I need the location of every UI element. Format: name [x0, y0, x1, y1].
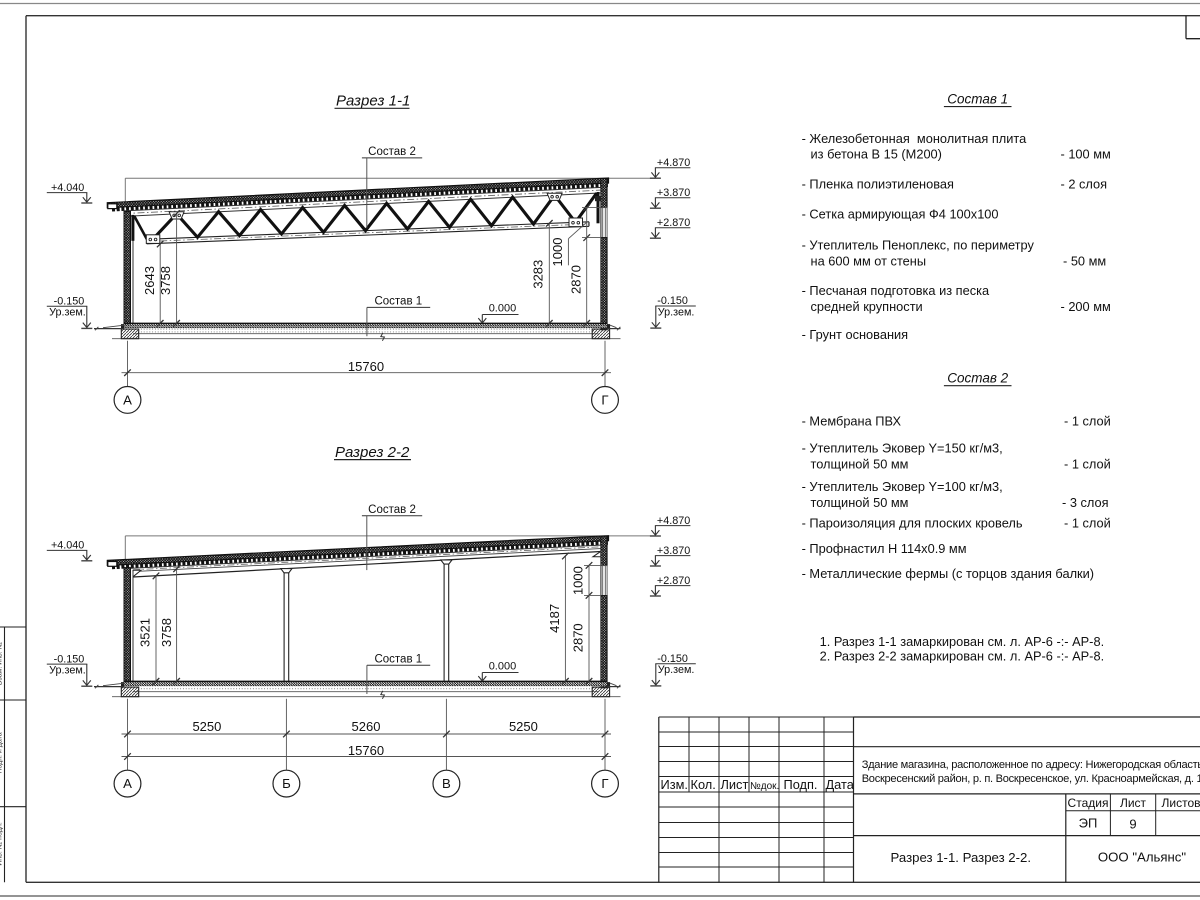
svg-text:+3.870: +3.870: [657, 187, 690, 199]
svg-text:-0.150: -0.150: [657, 653, 688, 665]
svg-text:- 3 слоя: - 3 слоя: [1062, 495, 1109, 510]
svg-text:- Утеплитель Эковер Y=100 кг/м: - Утеплитель Эковер Y=100 кг/м3,: [802, 479, 1003, 494]
svg-text:+4.040: +4.040: [51, 182, 84, 194]
svg-text:Г: Г: [601, 393, 608, 408]
svg-text:- Пароизоляция для плоских кро: - Пароизоляция для плоских кровель: [802, 516, 1023, 531]
svg-text:В: В: [442, 776, 451, 791]
svg-text:1000: 1000: [570, 566, 585, 595]
svg-text:1. Разрез 1-1 замаркирован см.: 1. Разрез 1-1 замаркирован см. л. АР-6 -…: [820, 634, 1105, 649]
svg-text:2. Разрез 2-2 замаркирован см.: 2. Разрез 2-2 замаркирован см. л. АР-6 -…: [820, 649, 1105, 664]
svg-text:-0.150: -0.150: [54, 296, 85, 308]
svg-text:Лист: Лист: [721, 777, 749, 792]
svg-text:15760: 15760: [348, 359, 384, 374]
svg-text:Взам. инв. №: Взам. инв. №: [0, 642, 3, 685]
svg-text:3283: 3283: [531, 260, 546, 289]
svg-text:4187: 4187: [547, 604, 562, 633]
svg-text:Состав 2: Состав 2: [947, 370, 1008, 385]
svg-text:Воскресенский район, р. п. Вос: Воскресенский район, р. п. Воскресенское…: [862, 773, 1200, 785]
svg-text:- 1 слой: - 1 слой: [1064, 516, 1111, 531]
svg-text:на 600 мм от стены: на 600 мм от стены: [811, 253, 927, 268]
svg-text:Ур.зем.: Ур.зем.: [658, 306, 695, 318]
svg-text:2870: 2870: [570, 623, 585, 652]
svg-text:Ур.зем.: Ур.зем.: [49, 665, 86, 677]
svg-text:Состав 1: Состав 1: [947, 91, 1008, 106]
svg-text:Подп.: Подп.: [784, 777, 818, 792]
svg-text:+4.870: +4.870: [657, 515, 690, 527]
svg-text:толщиной 50 мм: толщиной 50 мм: [811, 456, 909, 471]
svg-text:+4.870: +4.870: [657, 157, 690, 169]
svg-text:15760: 15760: [348, 743, 384, 758]
svg-text:Состав 2: Состав 2: [368, 146, 416, 158]
svg-text:- 200 мм: - 200 мм: [1061, 299, 1111, 314]
svg-text:Разрез 1-1: Разрез 1-1: [336, 92, 410, 109]
svg-text:Разрез 1-1. Разрез 2-2.: Разрез 1-1. Разрез 2-2.: [891, 850, 1031, 865]
svg-text:Подп. и дата: Подп. и дата: [0, 732, 3, 773]
svg-text:2870: 2870: [568, 265, 583, 294]
svg-text:+2.870: +2.870: [657, 217, 690, 229]
svg-text:- Мембрана ПВХ: - Мембрана ПВХ: [802, 413, 902, 428]
svg-text:- Железобетонная монолитная п: - Железобетонная монолитная плита: [802, 131, 1028, 146]
svg-text:- Профнастил Н 114х0.9 мм: - Профнастил Н 114х0.9 мм: [802, 541, 967, 556]
svg-text:ЭП: ЭП: [1079, 816, 1098, 831]
svg-text:3758: 3758: [159, 618, 174, 647]
svg-text:- 1 слой: - 1 слой: [1064, 456, 1111, 471]
svg-text:Г: Г: [601, 776, 608, 791]
svg-text:- Сетка армирующая Ф4 100х100: - Сетка армирующая Ф4 100х100: [802, 207, 999, 222]
svg-text:- Пленка полиэтиленовая: - Пленка полиэтиленовая: [802, 176, 954, 191]
svg-text:Листов: Листов: [1162, 796, 1200, 810]
svg-text:0.000: 0.000: [489, 661, 517, 673]
svg-text:Состав 1: Состав 1: [374, 296, 422, 308]
svg-text:-0.150: -0.150: [54, 653, 85, 665]
svg-text:Стадия: Стадия: [1068, 796, 1109, 810]
svg-text:1000: 1000: [550, 238, 565, 267]
svg-text:Здание магазина, расположенное: Здание магазина, расположенное по адресу…: [862, 759, 1200, 771]
svg-text:- Песчаная подготовка из песка: - Песчаная подготовка из песка: [802, 283, 990, 298]
svg-text:+2.870: +2.870: [657, 575, 690, 587]
svg-text:средней крупности: средней крупности: [811, 299, 923, 314]
svg-text:ООО "Альянс": ООО "Альянс": [1098, 850, 1186, 865]
svg-text:№док.: №док.: [750, 781, 779, 792]
svg-text:- 1 слой: - 1 слой: [1064, 413, 1111, 428]
svg-text:- 2 слоя: - 2 слоя: [1061, 176, 1108, 191]
svg-text:из бетона В 15 (М200): из бетона В 15 (М200): [811, 147, 942, 162]
svg-text:-0.150: -0.150: [657, 295, 688, 307]
svg-text:5260: 5260: [352, 719, 381, 734]
svg-text:Ур.зем.: Ур.зем.: [49, 307, 86, 319]
svg-text:- Металлические фермы (с торцо: - Металлические фермы (с торцов здания б…: [802, 566, 1094, 581]
svg-text:Кол.: Кол.: [691, 777, 716, 792]
svg-text:- Утеплитель Пеноплекс, по пер: - Утеплитель Пеноплекс, по периметру: [802, 237, 1035, 252]
svg-text:- Грунт основания: - Грунт основания: [802, 327, 909, 342]
svg-text:3521: 3521: [138, 618, 153, 647]
svg-text:Ур.зем.: Ур.зем.: [658, 664, 695, 676]
svg-text:Разрез 2-2: Разрез 2-2: [335, 444, 410, 461]
svg-text:+3.870: +3.870: [657, 545, 690, 557]
svg-text:Дата: Дата: [826, 777, 855, 792]
svg-text:А: А: [123, 393, 132, 408]
svg-text:3758: 3758: [158, 266, 173, 295]
svg-text:- 50 мм: - 50 мм: [1063, 253, 1106, 268]
svg-text:- 100 мм: - 100 мм: [1061, 147, 1111, 162]
svg-text:Инв. № подл.: Инв. № подл.: [0, 822, 3, 866]
svg-text:9: 9: [1129, 817, 1136, 832]
svg-text:+4.040: +4.040: [51, 540, 84, 552]
svg-text:Состав 2: Состав 2: [368, 504, 416, 516]
svg-text:толщиной 50 мм: толщиной 50 мм: [811, 495, 909, 510]
svg-text:Лист: Лист: [1120, 796, 1147, 810]
svg-text:0.000: 0.000: [489, 303, 517, 315]
svg-text:2643: 2643: [142, 266, 157, 295]
svg-text:- Утеплитель Эковер Y=150 кг/м: - Утеплитель Эковер Y=150 кг/м3,: [802, 440, 1003, 455]
svg-text:Изм.: Изм.: [661, 777, 688, 792]
svg-text:5250: 5250: [192, 719, 221, 734]
svg-text:А: А: [123, 776, 132, 791]
svg-text:Состав 1: Состав 1: [374, 654, 422, 666]
svg-text:5250: 5250: [509, 719, 538, 734]
svg-text:Б: Б: [282, 776, 291, 791]
